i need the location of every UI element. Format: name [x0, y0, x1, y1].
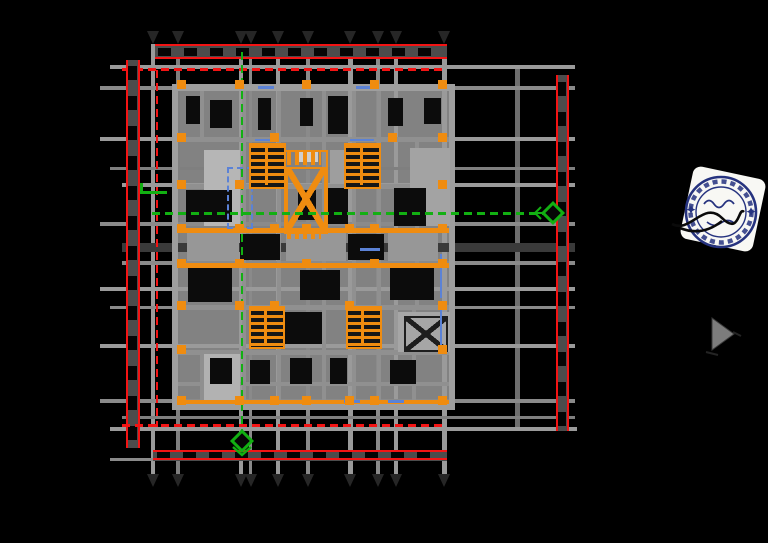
room-area	[290, 358, 312, 384]
centerline-vertical	[241, 52, 243, 434]
column	[270, 133, 279, 142]
column	[270, 301, 279, 310]
column	[302, 80, 311, 89]
axis-arrowhead	[172, 31, 184, 44]
cad-floor-plan-drawing: { "drawing": { "background": "#000000", …	[0, 0, 768, 543]
column	[270, 396, 279, 405]
column	[302, 224, 311, 233]
column	[235, 180, 244, 189]
axis-arrowhead	[245, 31, 257, 44]
column	[270, 224, 279, 233]
red-boundary-line	[155, 44, 447, 46]
room-area	[300, 98, 313, 126]
red-dashed-line	[156, 70, 158, 427]
column	[370, 259, 379, 268]
grid-line-h	[122, 416, 575, 419]
axis-arrowhead	[172, 474, 184, 487]
axis-arrowhead	[344, 474, 356, 487]
column	[235, 259, 244, 268]
column	[438, 301, 447, 310]
stair-flight	[249, 306, 285, 349]
stair-core-x	[286, 167, 326, 231]
window-marker	[440, 310, 442, 346]
column	[177, 133, 186, 142]
column	[345, 301, 354, 310]
axis-arrowhead	[438, 31, 450, 44]
room-area	[258, 98, 271, 130]
plan-canvas	[0, 0, 768, 543]
red-dashed-line	[122, 68, 447, 71]
column	[438, 259, 447, 268]
window-marker	[350, 139, 374, 141]
centerline-horizontal	[152, 212, 547, 215]
column	[177, 259, 186, 268]
column	[177, 224, 186, 233]
room-area	[250, 360, 270, 384]
axis-arrowhead	[390, 474, 402, 487]
column	[235, 396, 244, 405]
axis-arrowhead	[438, 474, 450, 487]
room-area	[186, 190, 232, 222]
column	[177, 180, 186, 189]
column	[235, 301, 244, 310]
room-area	[326, 188, 348, 224]
room-area	[424, 98, 441, 124]
room-area	[186, 96, 200, 124]
column	[302, 396, 311, 405]
column	[370, 224, 379, 233]
column	[438, 133, 447, 142]
axis-arrowhead	[245, 474, 257, 487]
dimension-text	[158, 48, 444, 56]
stair-flight	[346, 306, 382, 349]
stair-divider	[264, 306, 267, 345]
floor-patch	[187, 232, 239, 261]
column	[438, 180, 447, 189]
room-area	[330, 358, 347, 384]
column	[370, 80, 379, 89]
column	[345, 224, 354, 233]
red-dashed-line	[122, 424, 447, 427]
room-area	[328, 96, 348, 134]
room-area	[240, 234, 280, 260]
room-area	[394, 188, 426, 226]
exterior-wall	[172, 84, 455, 91]
axis-arrowhead	[147, 31, 159, 44]
dimension-text	[558, 82, 566, 426]
room-area	[348, 234, 384, 260]
red-boundary-line	[138, 60, 140, 448]
room-area	[300, 270, 340, 300]
axis-arrowhead	[272, 31, 284, 44]
exterior-wall	[449, 84, 455, 410]
window-marker	[388, 400, 404, 403]
axis-arrowhead	[372, 31, 384, 44]
column	[370, 396, 379, 405]
centerline-elbow	[140, 191, 167, 194]
column	[235, 80, 244, 89]
column	[235, 224, 244, 233]
room-area	[188, 268, 232, 302]
column	[388, 133, 397, 142]
column	[438, 80, 447, 89]
stair-core-treads	[287, 152, 321, 165]
window-marker	[258, 86, 274, 89]
dimension-text	[128, 66, 137, 446]
partition-wall	[178, 305, 449, 310]
axis-arrowhead	[272, 474, 284, 487]
column	[438, 345, 447, 354]
grid-line-v	[151, 44, 155, 474]
room-area	[390, 360, 416, 384]
column	[438, 224, 447, 233]
axis-arrowhead	[147, 474, 159, 487]
red-boundary-line	[153, 458, 447, 460]
room-area	[388, 98, 403, 126]
floor-patch	[388, 232, 438, 261]
red-boundary-line	[567, 75, 569, 431]
column	[177, 396, 186, 405]
stair-divider	[360, 143, 363, 185]
partition-wall	[178, 137, 449, 142]
grid-line-h	[110, 427, 577, 431]
column	[345, 396, 354, 405]
axis-arrowhead	[372, 474, 384, 487]
stair-divider	[361, 306, 364, 345]
column	[177, 345, 186, 354]
axis-arrowhead	[302, 31, 314, 44]
column	[177, 80, 186, 89]
room-area	[390, 268, 434, 300]
column	[438, 396, 447, 405]
column	[302, 259, 311, 268]
red-boundary-line	[155, 57, 447, 59]
beam-line	[183, 400, 449, 404]
exterior-wall	[172, 404, 455, 410]
column	[177, 301, 186, 310]
axis-arrowhead	[302, 474, 314, 487]
axis-arrowhead	[390, 31, 402, 44]
room-area	[210, 358, 232, 384]
axis-arrowhead	[344, 31, 356, 44]
stair-divider	[265, 143, 268, 185]
door-arrow	[360, 248, 380, 251]
room-area	[210, 100, 232, 128]
beam-line	[183, 263, 449, 268]
room-area	[284, 312, 322, 344]
grid-line-h	[110, 458, 154, 461]
partition-wall	[200, 91, 204, 137]
